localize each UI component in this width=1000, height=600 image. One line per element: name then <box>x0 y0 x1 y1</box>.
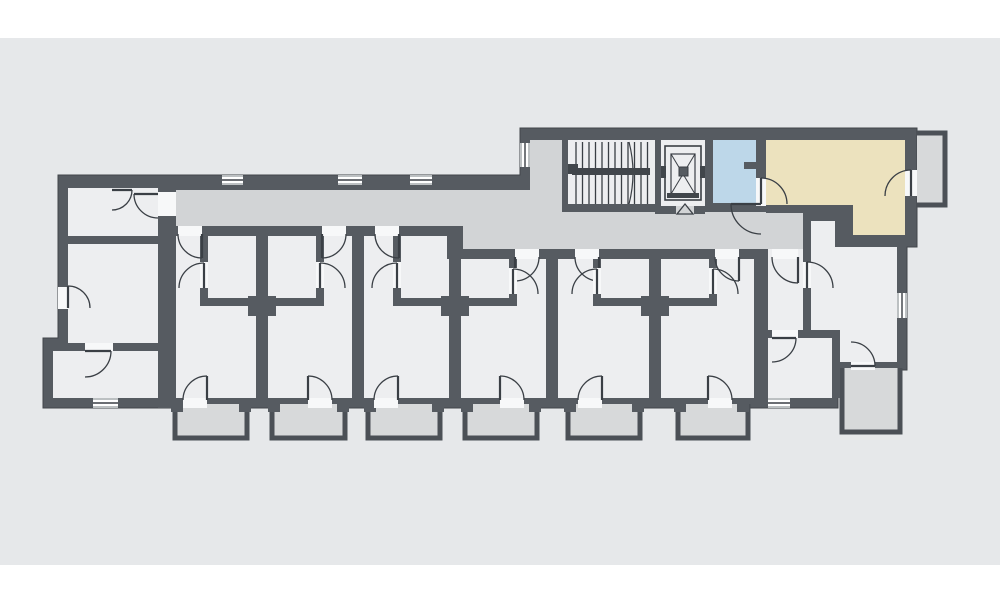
wall-partition-45 <box>239 398 251 412</box>
balcony-2[interactable] <box>272 404 345 438</box>
door-unit-2-balcony-opening <box>308 398 332 408</box>
elevator-guide-left <box>661 166 666 178</box>
wall-partition-39 <box>705 140 713 212</box>
unit-3-room[interactable] <box>364 236 449 398</box>
wall-partition-47 <box>337 398 349 412</box>
balcony-bottom-right[interactable] <box>842 368 900 432</box>
apartment-bottom-room[interactable] <box>768 338 832 398</box>
wall-partition-49 <box>432 398 444 412</box>
wall-partition-44 <box>171 398 183 412</box>
door-hall-bottom-room-opening <box>772 330 798 338</box>
wall-partition-46 <box>268 398 280 412</box>
door-unit-2-entry-opening <box>322 226 346 236</box>
door-unit-5-entry-opening <box>575 249 599 259</box>
door-unit-6-entry-opening <box>715 249 739 259</box>
wall-partition-28 <box>754 249 768 398</box>
wall-partition-12 <box>316 288 324 298</box>
elevator-door-bar <box>667 193 699 198</box>
elevator-guide-right <box>700 166 705 178</box>
wall-partition-30 <box>803 213 835 221</box>
door-unit-1-balcony-opening <box>183 398 207 408</box>
wall-partition-50 <box>461 398 473 412</box>
door-unit-5-balcony-opening <box>578 398 602 408</box>
door-left-entry-room-opening <box>158 192 176 216</box>
door-unit-3-entry-opening <box>375 226 399 236</box>
wall-partition-35 <box>832 338 840 398</box>
door-left-exterior-opening <box>58 287 68 309</box>
wall-partition-20 <box>449 298 517 306</box>
unit-2-room[interactable] <box>268 236 352 398</box>
wall-partition-42 <box>744 162 756 169</box>
left-apartment-bottom-room[interactable] <box>53 351 158 398</box>
wall-partition-33 <box>835 235 905 247</box>
stair-annex <box>530 140 562 212</box>
left-apartment-living[interactable] <box>68 244 158 343</box>
wall-partition-52 <box>564 398 576 412</box>
wall-partition-27 <box>649 298 717 306</box>
balcony-3[interactable] <box>368 404 440 438</box>
wall-partition-1 <box>158 188 176 408</box>
door-left-bottom-room-opening <box>85 343 113 351</box>
unit-1-room[interactable] <box>176 236 256 398</box>
elevator-counterweight <box>679 167 688 176</box>
wall-partition-15 <box>393 288 401 298</box>
left-apartment-entry[interactable] <box>68 188 158 236</box>
unit-5-room[interactable] <box>558 259 649 398</box>
wall-partition-51 <box>529 398 541 412</box>
wall-partition-53 <box>632 398 644 412</box>
floor-plan-page <box>0 0 1000 600</box>
door-unit-1-entry-opening <box>178 226 202 236</box>
wall-partition-8 <box>200 288 208 298</box>
balcony-5[interactable] <box>568 404 640 438</box>
wall-partition-2 <box>68 236 158 244</box>
wall-partition-36 <box>562 140 568 212</box>
balcony-1[interactable] <box>175 404 247 438</box>
wall-partition-4 <box>165 226 463 236</box>
balcony-top-right[interactable] <box>917 133 945 205</box>
wall-partition-38 <box>562 204 661 212</box>
stair-newel-post <box>568 164 578 174</box>
stair-handrail <box>572 168 650 175</box>
balcony-4[interactable] <box>465 404 537 438</box>
door-unit-3-balcony-opening <box>374 398 398 408</box>
wall-partition-55 <box>737 398 749 412</box>
door-unit-4-entry-opening <box>515 249 539 259</box>
door-apartment-hall-opening <box>772 249 798 259</box>
wall-partition-37 <box>655 140 661 214</box>
wall-partition-54 <box>674 398 686 412</box>
floor-plan-svg <box>0 0 1000 600</box>
room-highlight-blue[interactable] <box>713 140 756 203</box>
wall-partition-6 <box>447 226 463 259</box>
door-unit-4-balcony-opening <box>500 398 524 408</box>
wall-partition-13 <box>256 298 324 306</box>
door-unit-6-balcony-opening <box>708 398 732 408</box>
